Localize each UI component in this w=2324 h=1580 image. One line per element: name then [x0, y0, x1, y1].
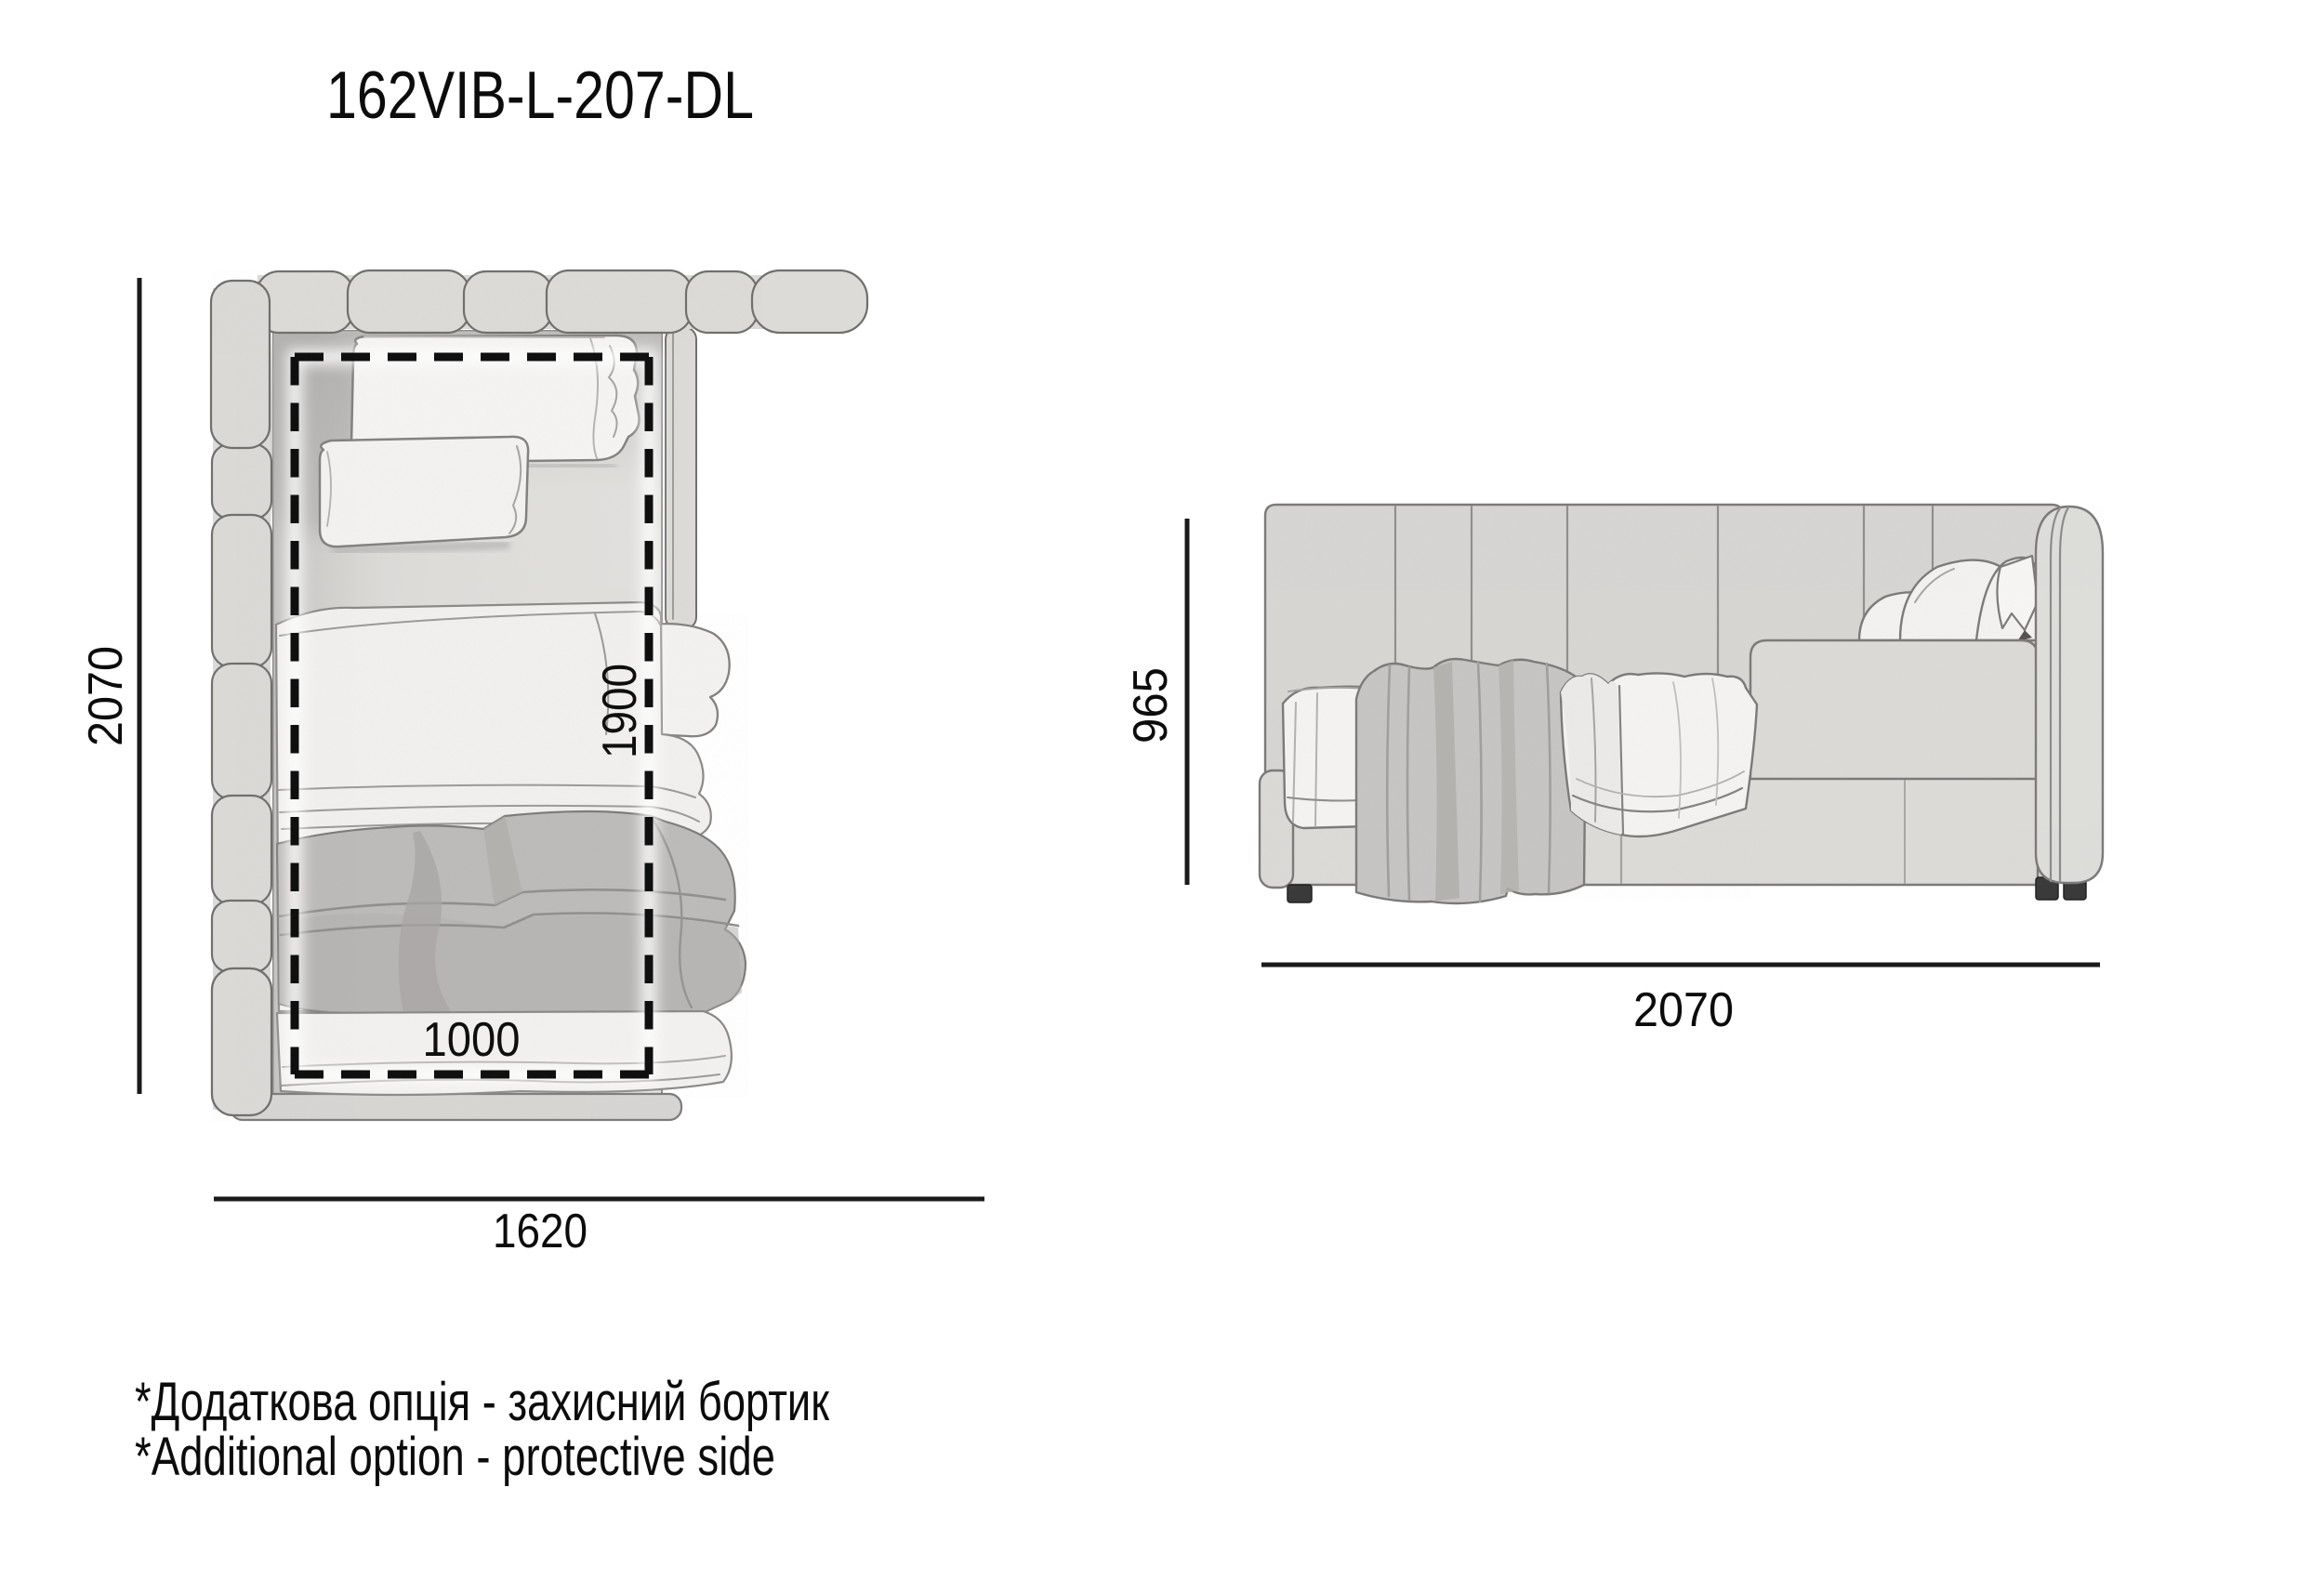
svg-text:2070: 2070: [79, 646, 133, 746]
svg-text:965: 965: [1124, 667, 1178, 744]
svg-text:*Additional option - protectiv: *Additional option - protective side: [135, 1427, 775, 1487]
svg-text:*Додаткова опція - захисний бо: *Додаткова опція - захисний бортик: [135, 1372, 829, 1432]
svg-text:2070: 2070: [1633, 983, 1734, 1037]
svg-text:1620: 1620: [493, 1205, 588, 1258]
svg-text:162VIB-L-207-DL: 162VIB-L-207-DL: [326, 59, 754, 133]
